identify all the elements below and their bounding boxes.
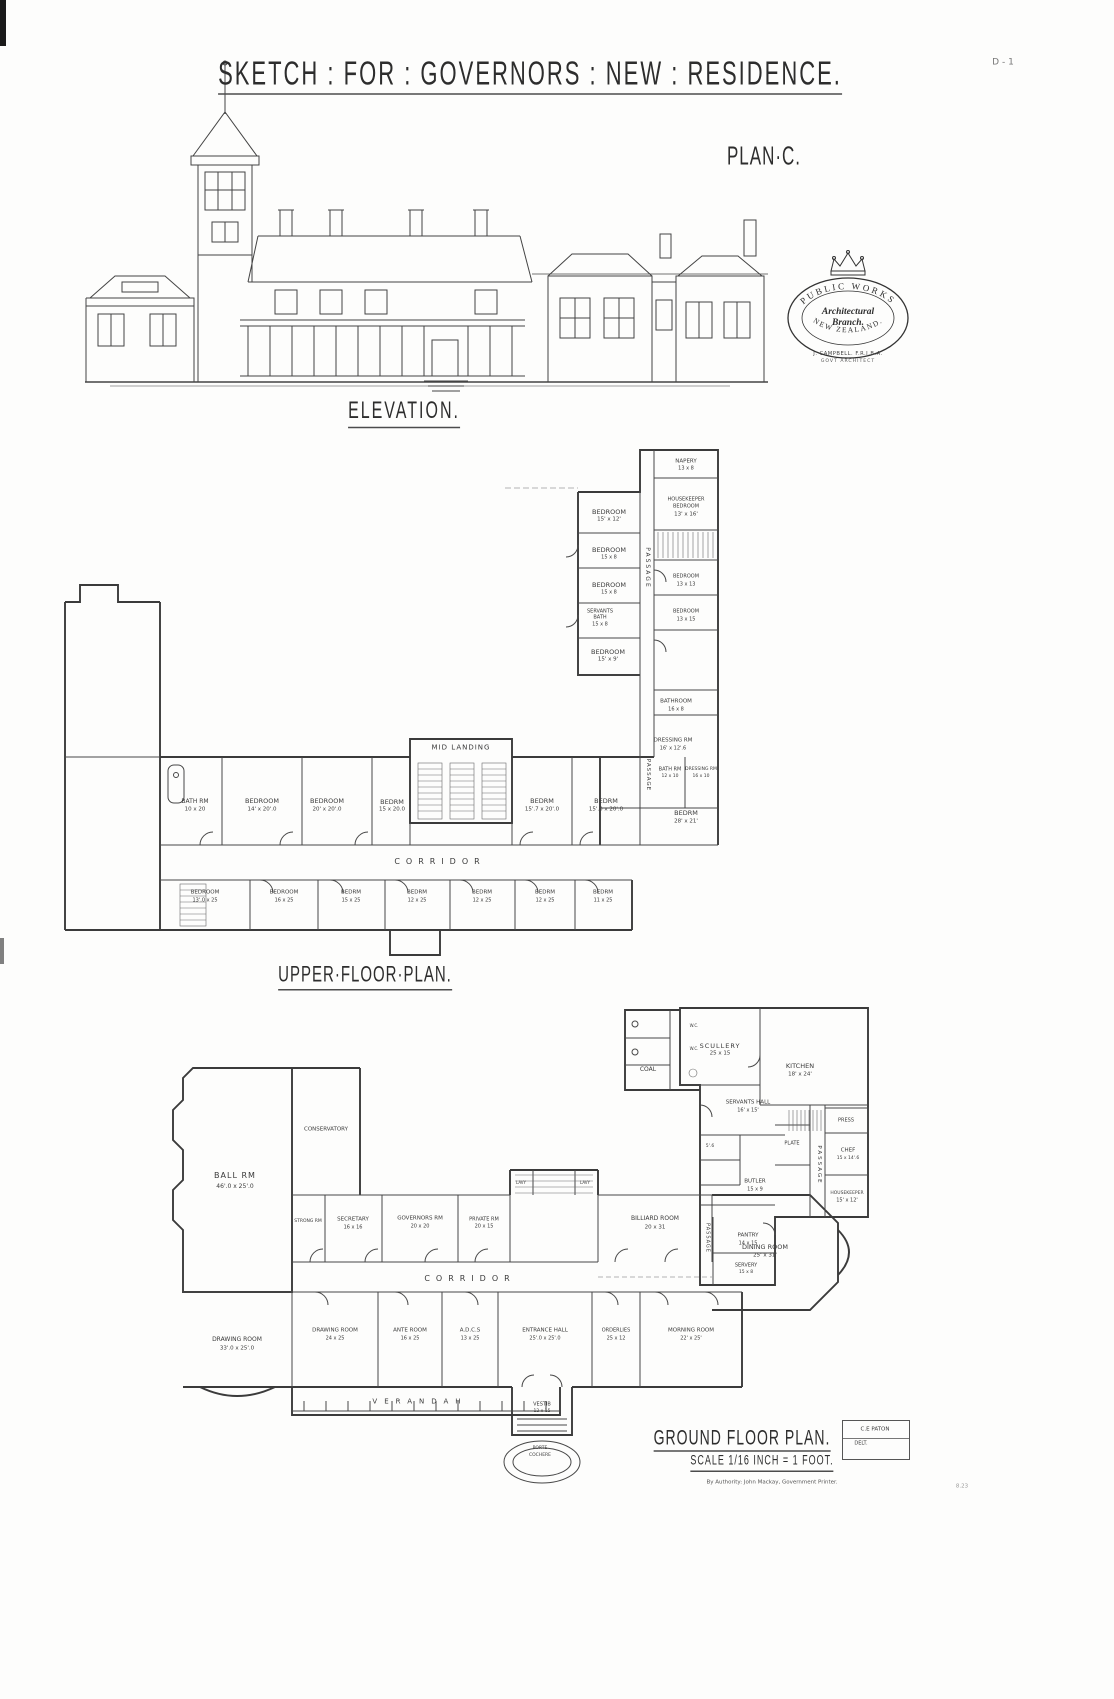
room-label-lavy: LAVY <box>516 1181 526 1185</box>
room-label-bedroom: BEDROOM <box>673 610 699 615</box>
room-label-12-x-25: 12 x 25 <box>408 899 427 904</box>
room-label-billiard-room: BILLIARD ROOM <box>631 1216 679 1222</box>
room-label-15-7-x-20-0: 15'.7 x 20'.0 <box>525 807 559 813</box>
room-label-porte: PORTE <box>533 1447 548 1452</box>
room-label-vestib: VESTIB <box>533 1403 551 1408</box>
room-label-16-x-10: 16 x 10 <box>693 775 710 780</box>
room-label-bedroom: BEDROOM <box>592 547 626 554</box>
room-label-mid-landing: MID LANDING <box>432 745 491 752</box>
room-label-bedroom: BEDROOM <box>270 890 299 896</box>
room-label-bathroom: BATHROOM <box>660 699 692 705</box>
scan-artifact <box>0 938 4 964</box>
room-label-strong-rm: STRONG RM <box>294 1220 322 1225</box>
room-label-housekeeper: HOUSEKEEPER <box>668 498 705 503</box>
room-label-bedroom: BEDROOM <box>191 890 220 896</box>
room-label-plate: PLATE <box>784 1142 799 1147</box>
room-label-governors-rm: GOVERNORS RM <box>397 1216 443 1222</box>
room-label-12-x-25: 12 x 25 <box>473 899 492 904</box>
scan-artifact <box>0 0 6 46</box>
room-label-dining-room: DINING ROOM <box>742 1244 788 1251</box>
room-label-ante-room: ANTE ROOM <box>393 1328 427 1334</box>
room-label-bedrm: BEDRM <box>380 799 404 806</box>
room-label-bedroom: BEDROOM <box>591 649 625 656</box>
room-label-28-x-21: 28' x 21' <box>674 819 698 825</box>
room-label-passage: PASSAGE <box>815 1145 821 1184</box>
room-label-15-x-9: 15 x 9 <box>747 1188 763 1193</box>
room-label-lavy: LAVY <box>580 1181 590 1185</box>
room-label-entrance-hall: ENTRANCE HALL <box>522 1328 568 1334</box>
room-label-16-x-25: 16 x 25 <box>401 1337 420 1342</box>
room-label-cochere: COCHERE <box>529 1454 551 1459</box>
room-label-secretary: SECRETARY <box>337 1217 369 1223</box>
crown-icon <box>831 251 865 276</box>
room-label-20-x-20: 20 x 20 <box>411 1225 430 1230</box>
room-label-13-x-15: 13 x 15 <box>677 618 696 623</box>
room-label-corridor: CORRIDOR <box>424 1275 515 1283</box>
room-label-15-x-12: 15' x 12' <box>597 517 621 523</box>
room-label-15-x-8: 15 x 8 <box>592 623 608 628</box>
room-label-12-x-15: 12 x 15 <box>534 1410 551 1415</box>
room-label-corridor: CORRIDOR <box>394 858 485 866</box>
room-label-20-x-15: 20 x 15 <box>475 1225 494 1230</box>
room-label-coal: COAL <box>640 1067 656 1073</box>
room-label-25-x-15: 25 x 15 <box>710 1051 731 1057</box>
room-label-bedrm: BEDRM <box>674 810 698 817</box>
room-label-22-x-25: 22' x 25' <box>680 1337 702 1342</box>
elevation-drawing <box>80 50 780 395</box>
room-label-bedroom: BEDROOM <box>245 798 279 805</box>
room-label-13-0-x-25: 13'.0 x 25 <box>192 899 217 904</box>
room-label-13-x-13: 13 x 13 <box>677 583 696 588</box>
room-label-bedroom: BEDROOM <box>673 575 699 580</box>
room-label-private-rm: PRIVATE RM <box>469 1218 499 1223</box>
room-label-15-x-14-6: 15 x 14'.6 <box>837 1157 860 1162</box>
room-label-15-x-8: 15 x 8 <box>601 556 617 561</box>
room-label-scullery: SCULLERY <box>700 1043 741 1050</box>
room-label-ball-rm: BALL RM <box>214 1172 256 1180</box>
authority-note: By Authority: John Mackay, Government Pr… <box>706 1480 837 1486</box>
room-label-dressing-rm: DRESSING RM <box>685 768 717 773</box>
room-label-33-0-x-25-0: 33'.0 x 25'.0 <box>220 1346 254 1352</box>
room-label-chef: CHEF <box>841 1148 856 1154</box>
signature-divider <box>843 1438 909 1439</box>
room-label-bath-rm: BATH RM <box>659 768 682 773</box>
room-label-drawing-room: DRAWING ROOM <box>212 1337 262 1343</box>
room-label-bedroom: BEDROOM <box>592 509 626 516</box>
room-label-16-x-8: 16 x 8 <box>668 708 684 713</box>
room-label-5-6: 5'.6 <box>706 1145 714 1150</box>
delt-note: DELT. <box>854 1442 867 1447</box>
room-label-w-c: W.C. <box>690 1047 699 1051</box>
draughtsman: C.E PATON <box>861 1427 890 1433</box>
room-label-18-x-24: 18' x 24' <box>788 1072 812 1078</box>
main-title: SKETCH : FOR : GOVERNORS : NEW : RESIDEN… <box>218 57 842 95</box>
room-label-pantry: PANTRY <box>737 1233 758 1239</box>
room-label-w-c: W.C. <box>690 1024 699 1028</box>
room-label-46-0-x-25-0: 46'.0 x 25'.0 <box>216 1184 253 1190</box>
room-label-16-x-15: 16' x 15' <box>737 1109 759 1114</box>
room-label-kitchen: KITCHEN <box>786 1063 814 1070</box>
room-label-15-0-x-20-0: 15'.0 x 20'.0 <box>589 807 623 813</box>
ground-floor-plan <box>165 935 885 1490</box>
upper-plan-title: UPPER·FLOOR·PLAN. <box>278 964 452 991</box>
print-ref: 8.23 <box>956 1484 968 1490</box>
room-label-bedrm: BEDRM <box>530 798 554 805</box>
upper-floor-plan <box>60 445 725 960</box>
room-label-bath: BATH <box>593 616 606 621</box>
room-label-13-x-16: 13' x 16' <box>674 512 698 518</box>
room-label-15-x-20-0: 15 x 20.0 <box>379 807 405 813</box>
room-label-orderlies: ORDERLIES <box>602 1329 631 1334</box>
room-label-13-x-8: 13 x 8 <box>678 467 694 472</box>
room-label-napery: NAPERY <box>675 459 697 465</box>
scale-note: SCALE 1/16 INCH = 1 FOOT. <box>690 1454 833 1472</box>
room-label-morning-room: MORNING ROOM <box>668 1328 714 1334</box>
room-label-13-x-25: 13 x 25 <box>461 1337 480 1342</box>
plan-letter: PLAN·C. <box>727 143 801 169</box>
room-label-12-x-10: 12 x 10 <box>662 775 679 780</box>
room-label-15-x-8: 15 x 8 <box>739 1271 753 1276</box>
room-label-15-x-12: 15' x 12' <box>836 1199 858 1204</box>
room-label-bedrm: BEDRM <box>472 890 492 896</box>
room-label-15-x-8: 15 x 8 <box>601 591 617 596</box>
room-label-14-x-20-0: 14' x 20'.0 <box>247 807 276 813</box>
room-label-16-x-12-6: 16' x 12'.6 <box>660 747 686 752</box>
room-label-25-x-12: 25 x 12 <box>607 1337 626 1342</box>
room-label-11-x-25: 11 x 25 <box>594 899 613 904</box>
room-label-bedroom: BEDROOM <box>673 505 699 510</box>
room-label-bedrm: BEDRM <box>407 890 427 896</box>
room-label-bedrm: BEDRM <box>594 798 618 805</box>
room-label-15-x-9: 15' x 9' <box>598 657 618 663</box>
room-label-10-x-20: 10 x 20 <box>185 807 206 813</box>
elevation-title: ELEVATION. <box>348 400 460 429</box>
public-works-stamp: PUBLIC WORKS Architectural Branch. NEW Z… <box>783 243 913 368</box>
room-label-passage: PASSAGE <box>705 1223 710 1253</box>
room-label-12-x-25: 12 x 25 <box>536 899 555 904</box>
room-label-25-0-x-25-0: 25'.0 x 25'.0 <box>529 1337 560 1342</box>
room-label-verandah: VERANDAH <box>372 1399 467 1406</box>
room-label-25-x-31: 25' x 31' <box>753 1253 777 1259</box>
room-label-bedroom: BEDROOM <box>310 798 344 805</box>
room-label-bedrm: BEDRM <box>593 890 613 896</box>
room-label-butler: BUTLER <box>744 1179 766 1185</box>
room-label-a-d-c-s: A.D.C.S <box>460 1328 480 1334</box>
room-label-housekeeper: HOUSEKEEPER <box>830 1192 863 1197</box>
room-label-15-x-25: 15 x 25 <box>342 899 361 904</box>
room-label-drawing-room: DRAWING ROOM <box>312 1328 358 1334</box>
stamp-branch-line1: Architectural <box>821 307 875 317</box>
room-label-passage: PASSAGE <box>644 547 650 589</box>
room-label-16-x-25: 16 x 25 <box>275 899 294 904</box>
room-label-20-x-20-0: 20' x 20'.0 <box>312 807 341 813</box>
room-label-24-x-25: 24 x 25 <box>326 1337 345 1342</box>
room-label-20-x-31: 20 x 31 <box>645 1225 666 1231</box>
room-label-bath-rm: BATH RM <box>181 799 208 805</box>
stamp-architect-title: GOVT ARCHITECT <box>821 358 875 364</box>
room-label-16-x-16: 16 x 16 <box>344 1226 363 1231</box>
room-label-bedroom: BEDROOM <box>592 582 626 589</box>
room-label-press: PRESS <box>838 1119 854 1124</box>
room-label-servants-hall: SERVANTS HALL <box>726 1100 770 1106</box>
room-label-bedrm: BEDRM <box>341 890 361 896</box>
ground-plan-title: GROUND FLOOR PLAN. <box>654 1426 831 1452</box>
drawing-sheet: PUBLIC WORKS Architectural Branch. NEW Z… <box>0 0 1114 1699</box>
room-label-servery: SERVERY <box>735 1264 757 1269</box>
room-label-bedrm: BEDRM <box>535 890 555 896</box>
stamp-architect: J. CAMPBELL. F.R.I.B.A. <box>812 351 882 357</box>
room-label-dressing-rm: DRESSING RM <box>654 738 693 744</box>
room-label-conservatory: CONSERVATORY <box>304 1127 348 1133</box>
room-label-passage: PASSAGE <box>644 759 650 791</box>
sheet-code: D - 1 <box>992 59 1014 68</box>
